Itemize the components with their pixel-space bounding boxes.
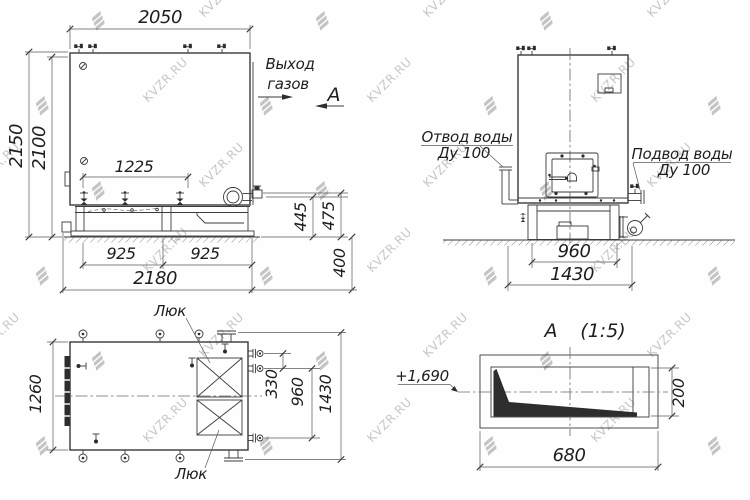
gas-flow-arrow-icon [282, 94, 293, 99]
top-view: 1260 330 960 1430 Люк Люк [26, 302, 346, 483]
watermark-logo-icon [32, 266, 52, 286]
technical-drawing-svg: KVZR.RUKVZR.RUKVZR.RUKVZR.RUKVZR.RUKVZR.… [0, 0, 750, 500]
hatch-label-top: Люк [153, 302, 186, 320]
furnace-door [546, 153, 599, 197]
watermark-text: KVZR.RU [588, 55, 638, 105]
dimensions-section: 200 680 [477, 365, 688, 471]
watermark-logo-icon [312, 181, 332, 201]
watermark-text: KVZR.RU [364, 225, 414, 275]
watermark-logo-icon [32, 436, 52, 456]
gas-outlet-annotation: Выход газов [258, 55, 315, 100]
dim-1430-side: 1430 [550, 264, 594, 285]
dim-2050: 2050 [138, 7, 182, 28]
hatch-label-bottom: Люк [174, 465, 207, 483]
front-view: 2050 2150 2100 1225 925 925 2180 [6, 7, 357, 293]
dim-1260: 1260 [26, 374, 45, 413]
water-outlet-pipe [499, 167, 526, 222]
section-letter: А [326, 84, 341, 106]
drawing-canvas: KVZR.RUKVZR.RUKVZR.RUKVZR.RUKVZR.RUKVZR.… [0, 0, 750, 500]
watermark-logo-icon [704, 96, 724, 116]
roof-valves-side [516, 46, 616, 55]
watermark-logo-icon [88, 11, 108, 31]
dim-925-right: 925 [190, 244, 219, 263]
watermark-logo-icon [256, 96, 276, 116]
watermark-text: KVZR.RU [140, 395, 190, 445]
dim-1430-plan: 1430 [316, 374, 335, 413]
watermark-text: KVZR.RU [588, 395, 638, 445]
watermark-text: KVZR.RU [196, 140, 246, 190]
duct-outline [458, 347, 668, 436]
base-frame-side [528, 205, 619, 240]
dim-445: 445 [291, 202, 310, 231]
roof-valves-front [74, 44, 226, 53]
watermark-layer: KVZR.RUKVZR.RUKVZR.RUKVZR.RUKVZR.RUKVZR.… [0, 0, 724, 456]
flange-and-valve-front [224, 186, 263, 207]
watermark-logo-icon [88, 351, 108, 371]
dim-200: 200 [669, 378, 688, 407]
watermark-text: KVZR.RU [140, 55, 190, 105]
dim-475: 475 [319, 201, 338, 230]
dim-330: 330 [262, 369, 281, 398]
water-outlet-annotation: Отвод воды Ду 100 [421, 128, 513, 167]
watermark-logo-icon [32, 96, 52, 116]
watermark-text: KVZR.RU [196, 0, 246, 20]
watermark-logo-icon [536, 351, 556, 371]
watermark-text: KVZR.RU [364, 55, 414, 105]
watermark-logo-icon [480, 266, 500, 286]
gas-outlet-label-1: Выход [265, 55, 314, 73]
dim-960-plan: 960 [288, 377, 307, 406]
ground-front [64, 237, 260, 243]
level-mark: +1,690 [395, 367, 449, 385]
water-outlet-dn: Ду 100 [437, 144, 490, 162]
section-title-letter: А [543, 320, 558, 342]
watermark-logo-icon [536, 11, 556, 31]
dim-925-left: 925 [106, 244, 135, 263]
base-frame-front [71, 207, 254, 237]
watermark-logo-icon [480, 96, 500, 116]
watermark-logo-icon [88, 181, 108, 201]
watermark-logo-icon [256, 266, 276, 286]
water-inlet-dn: Ду 100 [657, 161, 710, 179]
side-view: 960 1430 Отвод воды Ду 100 Подвод воды Д… [421, 46, 735, 291]
watermark-text: KVZR.RU [364, 395, 414, 445]
gas-outlet-label-2: газов [267, 75, 309, 93]
watermark-text: KVZR.RU [644, 0, 694, 20]
dim-960-side: 960 [558, 241, 591, 262]
level-mark-annotation: +1,690 [395, 367, 458, 392]
hatch-annotations: Люк Люк [153, 302, 219, 483]
hatch-openings [197, 358, 242, 435]
watermark-logo-icon [704, 436, 724, 456]
dim-2150: 2150 [6, 124, 27, 168]
dimensions-front: 2050 2150 2100 1225 925 925 2180 [6, 7, 357, 293]
dim-680: 680 [553, 445, 586, 466]
dim-1225: 1225 [115, 157, 154, 176]
dim-2180: 2180 [133, 268, 177, 289]
door-handle-icon [568, 173, 577, 181]
watermark-text: KVZR.RU [196, 310, 246, 360]
watermark-logo-icon [312, 11, 332, 31]
level-arrow-icon [451, 386, 458, 392]
watermark-logo-icon [256, 436, 276, 456]
watermark-logo-icon [480, 436, 500, 456]
section-arrow-icon [315, 103, 327, 108]
watermark-text: KVZR.RU [644, 310, 694, 360]
water-inlet-pipe [628, 184, 644, 204]
dim-2100: 2100 [29, 126, 50, 170]
dim-400: 400 [330, 248, 349, 277]
watermark-logo-icon [704, 266, 724, 286]
watermark-text: KVZR.RU [0, 0, 23, 20]
section-title-scale: (1:5) [580, 320, 625, 342]
watermark-text: KVZR.RU [420, 310, 470, 360]
watermark-text: KVZR.RU [0, 310, 23, 360]
watermark-text: KVZR.RU [420, 0, 470, 20]
watermark-logo-icon [312, 351, 332, 371]
section-cut-annotation: А [315, 84, 344, 109]
